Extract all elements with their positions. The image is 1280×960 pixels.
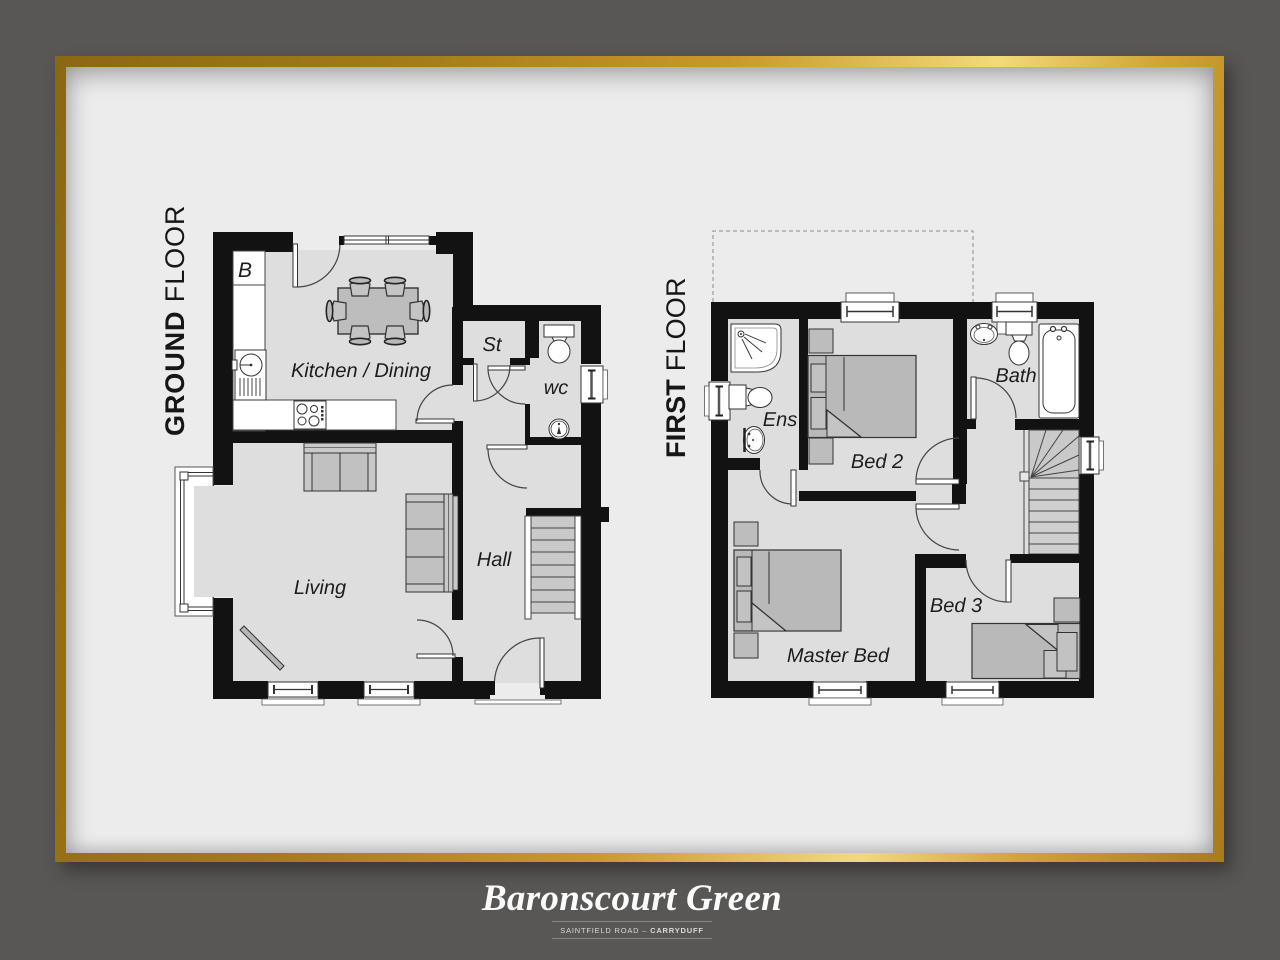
svg-text:Kitchen / Dining: Kitchen / Dining bbox=[291, 360, 431, 382]
svg-text:Ens: Ens bbox=[763, 409, 797, 431]
svg-text:Master Bed: Master Bed bbox=[787, 645, 890, 667]
svg-text:Bed 3: Bed 3 bbox=[930, 595, 982, 617]
svg-text:Bath: Bath bbox=[995, 365, 1036, 387]
svg-text:B: B bbox=[238, 259, 252, 282]
svg-text:Hall: Hall bbox=[477, 549, 512, 571]
svg-text:Bed 2: Bed 2 bbox=[851, 451, 903, 473]
svg-text:wc: wc bbox=[544, 377, 568, 399]
svg-text:GROUND FLOOR: GROUND FLOOR bbox=[160, 205, 190, 436]
svg-text:FIRST FLOOR: FIRST FLOOR bbox=[661, 277, 691, 458]
svg-text:Living: Living bbox=[294, 577, 346, 599]
svg-text:St: St bbox=[483, 334, 503, 356]
